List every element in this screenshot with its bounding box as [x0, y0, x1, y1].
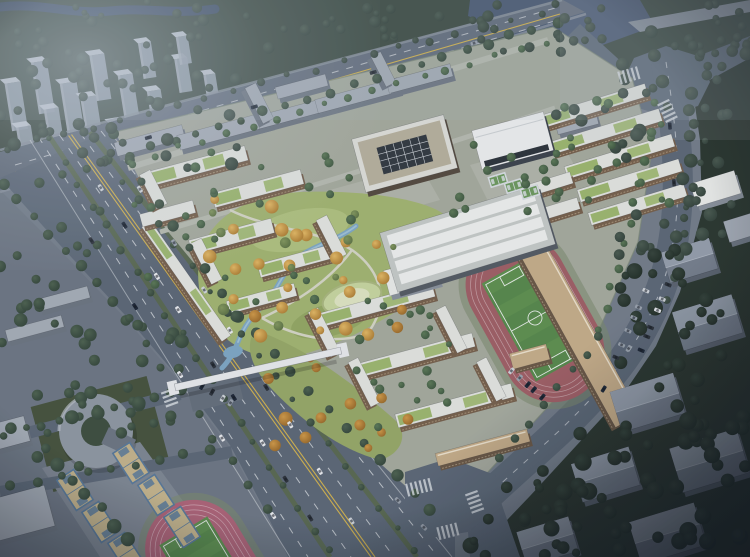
rendering-canvas: [0, 0, 750, 557]
aerial-campus-rendering: Bird's-eye architectural rendering of a …: [0, 0, 750, 557]
color-cast: [0, 0, 750, 557]
